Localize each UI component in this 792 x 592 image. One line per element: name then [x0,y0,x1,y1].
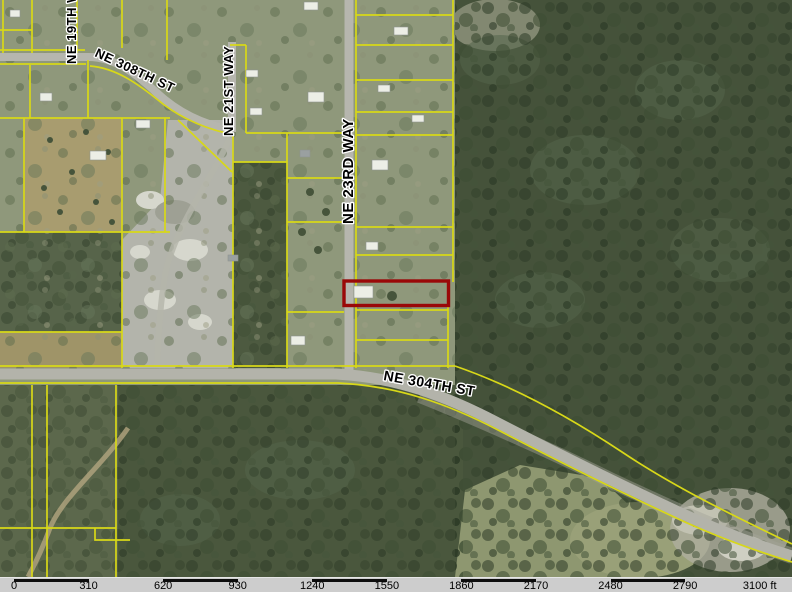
scale-tick-label: 1860 [449,581,473,592]
scale-tick-label: 930 [229,581,247,592]
street-label-ne-23rd-way: NE 23RD WAY [340,118,357,224]
scale-tick-label: 2790 [673,581,697,592]
scale-bar-segment [163,579,238,582]
scale-bar: 03106209301240155018602170248027903100 f… [0,577,792,592]
scale-tick-label: 1550 [375,581,399,592]
scale-tick-label: 2170 [524,581,548,592]
scale-tick-label: 2480 [598,581,622,592]
terrain-layer [0,0,792,577]
scale-tick-label: 310 [79,581,97,592]
scale-tick-label: 1240 [300,581,324,592]
scale-end-label: 3100 ft [743,581,777,592]
map-canvas[interactable]: NE 19TH WAY NE 308TH ST NE 21ST WAY NE 2… [0,0,792,577]
street-label-ne-21st-way: NE 21ST WAY [221,46,236,136]
street-label-ne-19th-way: NE 19TH WAY [64,0,79,64]
map-viewport: NE 19TH WAY NE 308TH ST NE 21ST WAY NE 2… [0,0,792,592]
scale-tick-label: 620 [154,581,172,592]
scale-tick-label: 0 [11,581,17,592]
scale-bar-segment [14,579,89,582]
